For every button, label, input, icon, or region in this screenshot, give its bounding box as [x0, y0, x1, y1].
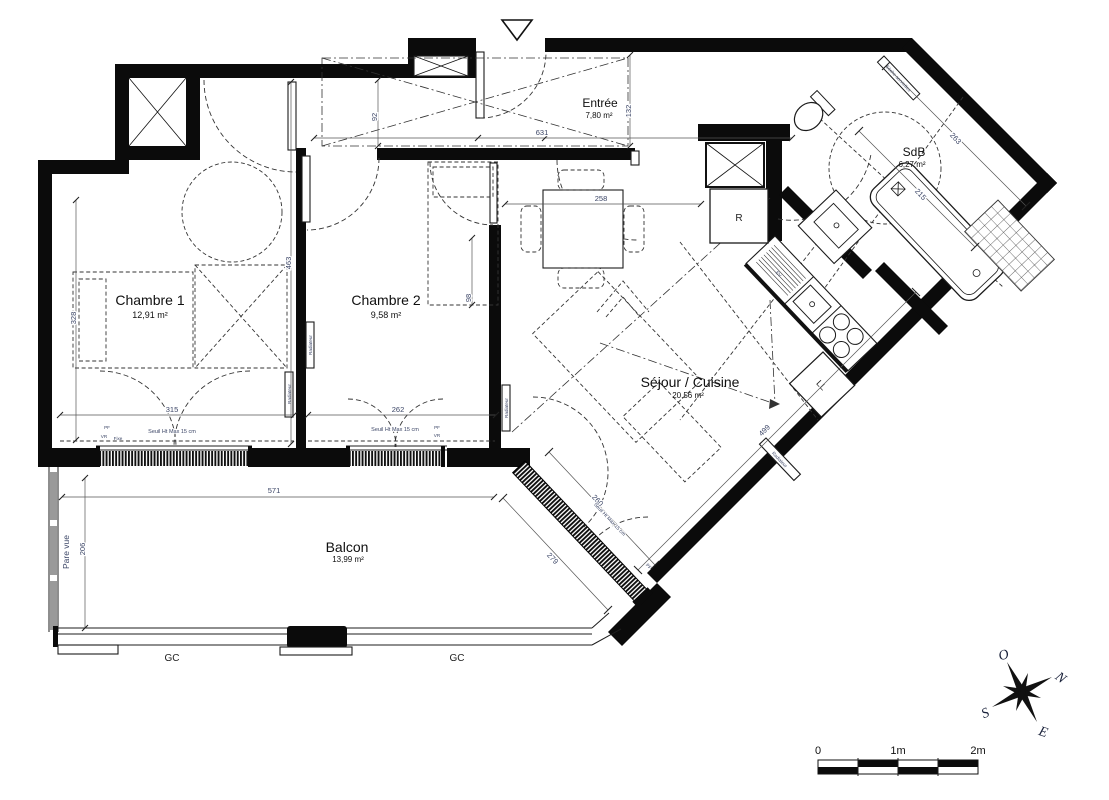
- floor-plan: EV R LL Sèche-serviettes Radiateur Radi: [0, 0, 1109, 800]
- room-area-chambre2: 9,58 m²: [371, 310, 402, 320]
- dim-499: 499: [757, 423, 772, 438]
- dim-328: 328: [69, 312, 78, 325]
- bay-window: [511, 460, 653, 608]
- room-label-chambre1: Chambre 1: [115, 292, 184, 308]
- vr-label: VR: [101, 434, 108, 439]
- dim-571: 571: [268, 486, 281, 495]
- dim-92: 92: [370, 113, 379, 121]
- chambre1-bed: [73, 272, 193, 368]
- room-area-chambre1: 12,91 m²: [132, 310, 168, 320]
- scale-2m: 2m: [970, 745, 985, 757]
- threshold-label: Seuil Ht Max 15 cm: [148, 429, 196, 435]
- scale-0: 0: [815, 745, 821, 757]
- room-label-sdb: SdB: [903, 145, 926, 159]
- chambre1-door: [204, 80, 296, 172]
- dim-263: 263: [948, 131, 963, 146]
- radiator-label: Radiateur: [308, 335, 313, 355]
- privacy-screen: [50, 472, 57, 630]
- room-area-balcon: 13,99 m²: [332, 555, 364, 564]
- threshold-label: Seuil Ht Max 15 cm: [592, 502, 626, 538]
- sofa: [533, 272, 702, 443]
- radiator-label: Radiateur: [504, 398, 509, 418]
- gc-label: GC: [165, 653, 180, 664]
- window-chambre2: [346, 444, 447, 469]
- pf-label: PF: [104, 425, 110, 430]
- entrance-marker-icon: [502, 20, 532, 40]
- scale-bar: 0 1m 2m: [815, 745, 986, 776]
- entrance-door: [476, 20, 546, 118]
- dim-258: 258: [595, 194, 608, 203]
- dim-631: 631: [536, 128, 549, 137]
- floor-plan-page: EV R LL Sèche-serviettes Radiateur Radi: [0, 0, 1109, 800]
- room-area-sdb: 6,27 m²: [898, 160, 925, 169]
- chambre2-bed: [428, 162, 498, 305]
- dim-279: 279: [545, 551, 560, 566]
- dim-98: 98: [464, 294, 473, 302]
- compass-north: N: [1051, 669, 1069, 688]
- room-labels: Chambre 1 12,91 m² Chambre 2 9,58 m² Ent…: [115, 96, 926, 564]
- threshold-label: Seuil Ht Max 15 cm: [371, 427, 419, 433]
- dim-132: 132: [624, 105, 633, 118]
- balcony-railing: [53, 613, 621, 655]
- planter: [287, 626, 347, 648]
- room-label-sejour: Séjour / Cuisine: [641, 374, 740, 390]
- room-label-balcon: Balcon: [326, 539, 369, 555]
- dim-262: 262: [392, 405, 405, 414]
- room-label-entree: Entrée: [582, 96, 618, 110]
- compass-west: O: [997, 647, 1011, 664]
- toilet: [788, 91, 835, 137]
- dim-463: 463: [284, 257, 293, 270]
- compass-east: E: [1036, 724, 1050, 741]
- chambre1-wardrobe: [195, 265, 287, 368]
- fixe-label: Fixe: [114, 436, 123, 441]
- scale-1m: 1m: [890, 745, 905, 757]
- vr-label: VR: [434, 433, 441, 438]
- compass-south: S: [979, 706, 992, 723]
- fridge: R: [710, 189, 768, 243]
- room-area-sejour: 20,56 m²: [672, 391, 704, 400]
- chambre2-door: [302, 156, 379, 230]
- chambre2-sejour-door: [430, 162, 497, 225]
- dining-table: [521, 170, 644, 288]
- fridge-label: R: [735, 213, 742, 224]
- room-area-entree: 7,80 m²: [585, 111, 612, 120]
- dim-315: 315: [166, 405, 179, 414]
- room-label-chambre2: Chambre 2: [351, 292, 420, 308]
- compass-star-icon: [992, 662, 1052, 722]
- pare-vue-label: Pare vue: [61, 535, 71, 569]
- dim-206: 206: [78, 543, 87, 556]
- window-chambre1: [96, 444, 252, 469]
- pf-label: PF: [434, 425, 440, 430]
- gc-label: GC: [450, 653, 465, 664]
- compass-rose: O N S E: [979, 647, 1069, 741]
